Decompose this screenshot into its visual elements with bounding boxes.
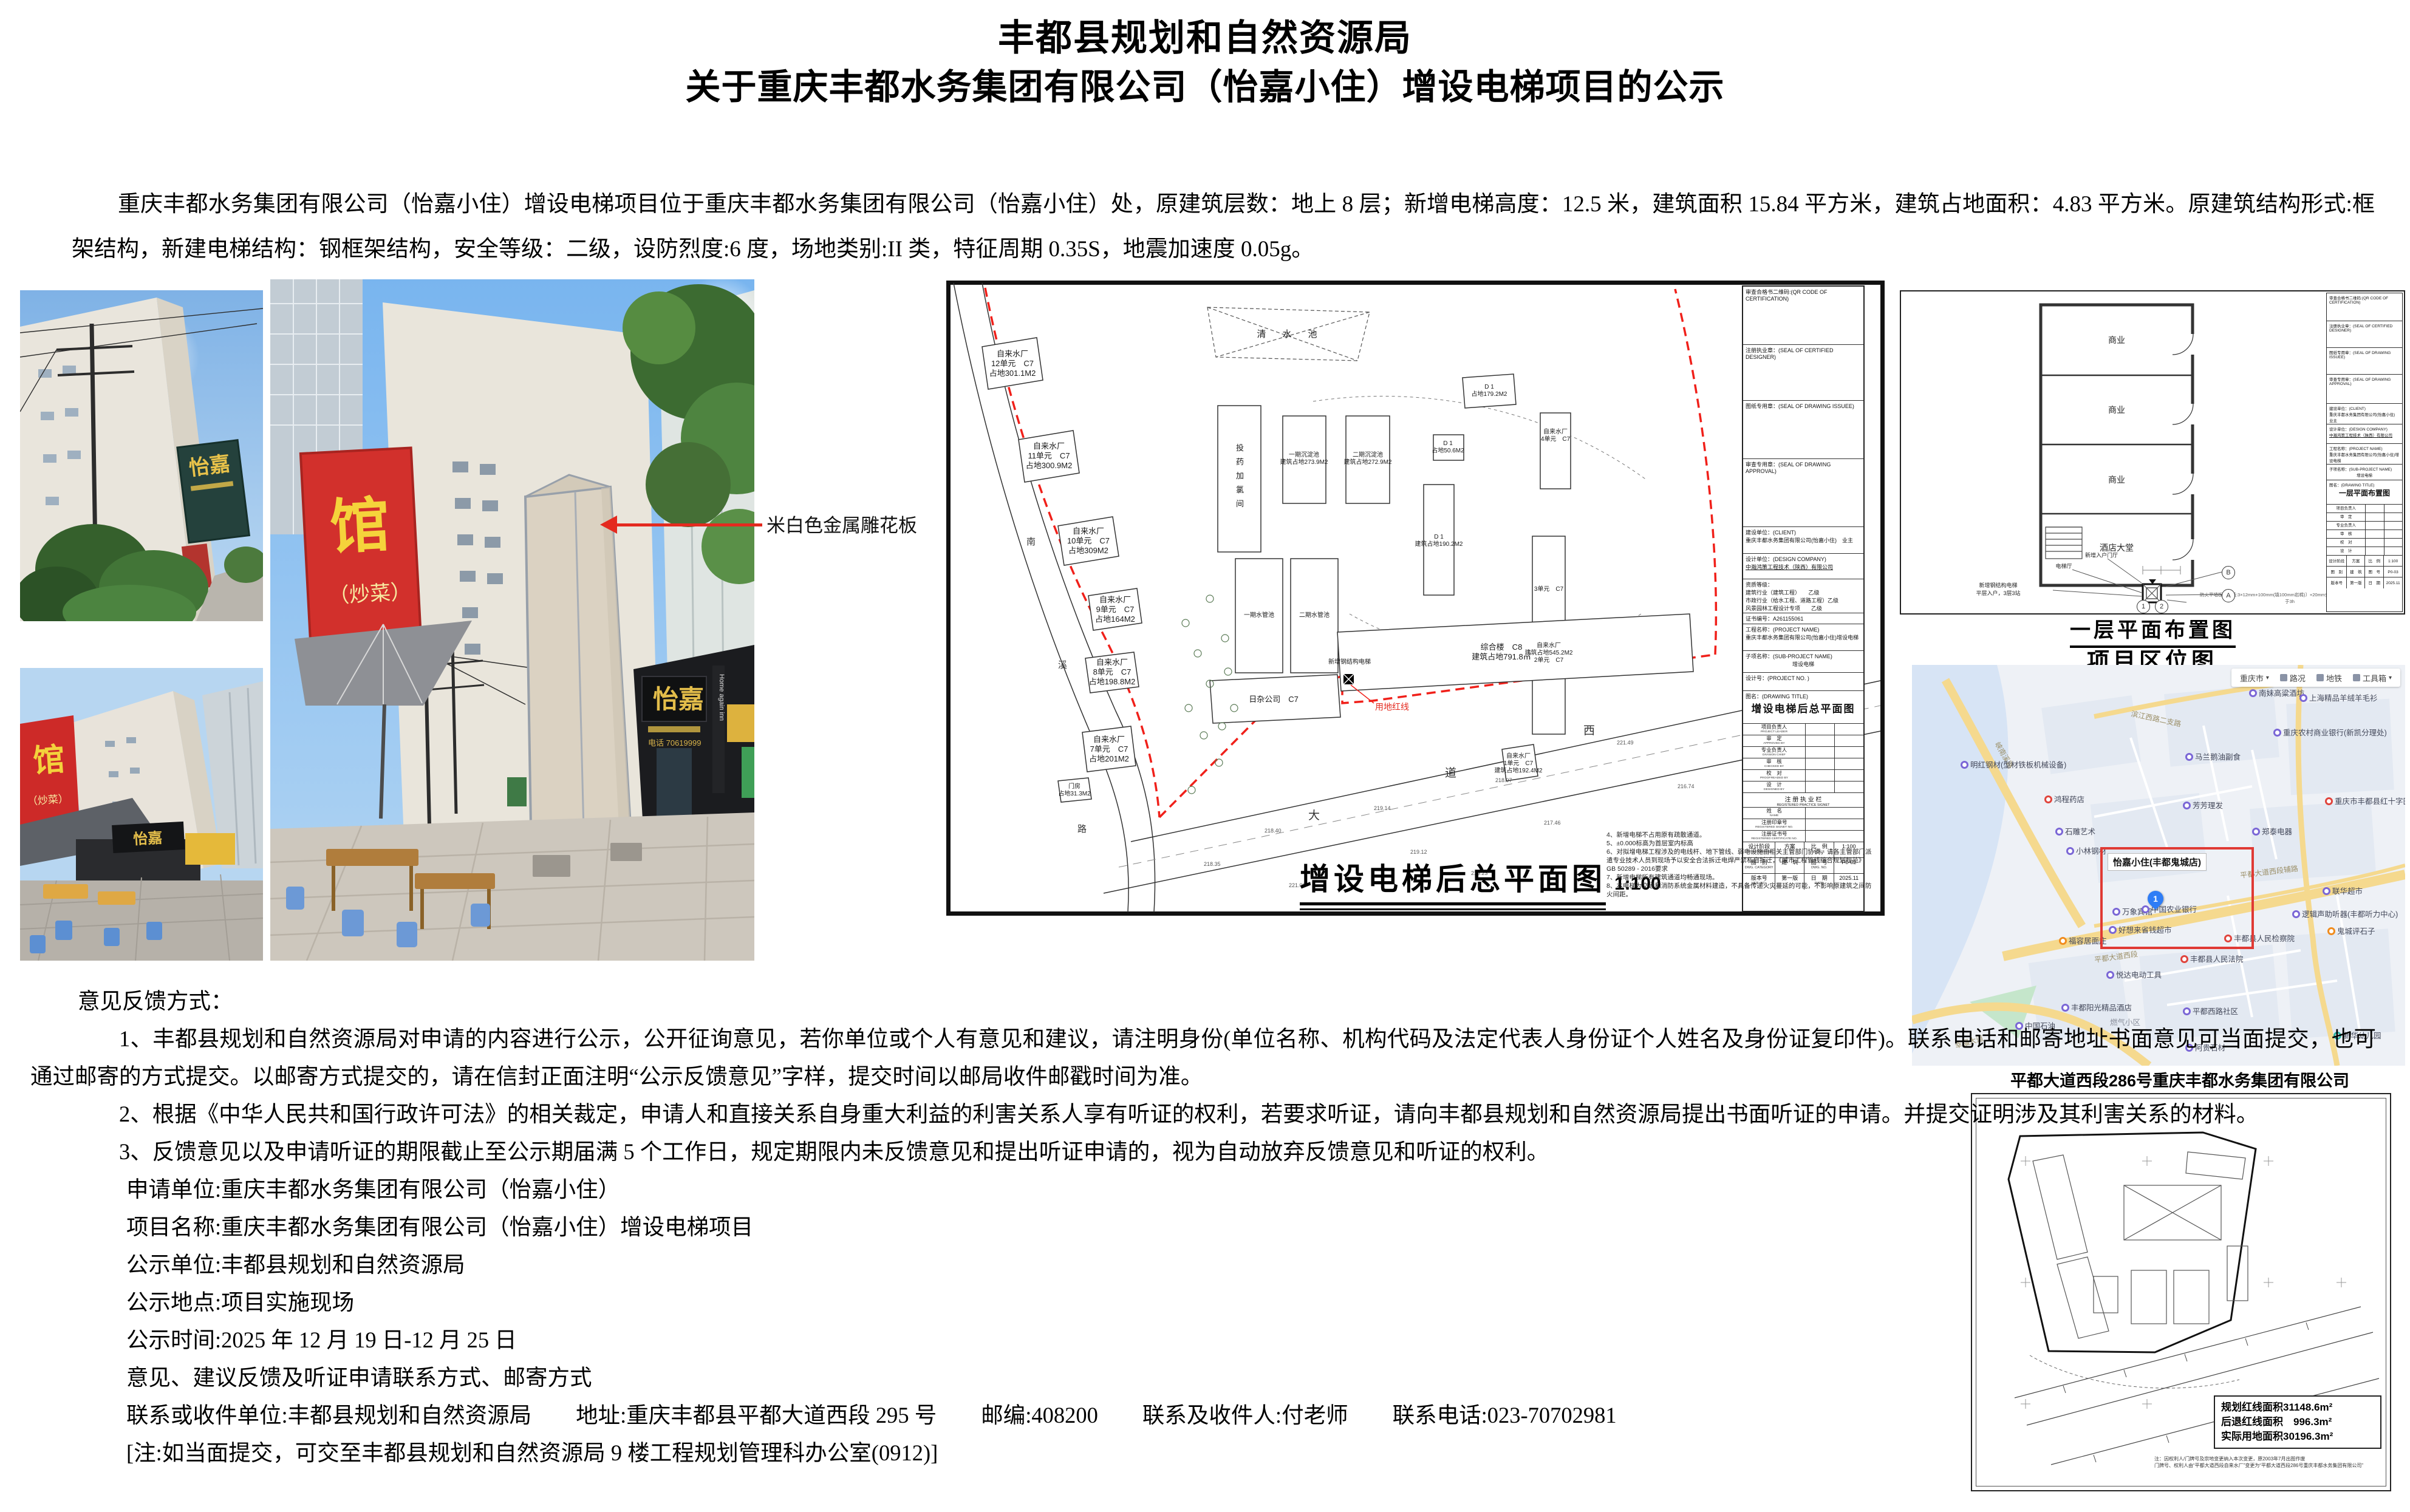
photo2-banner-char: 馆 <box>32 742 66 779</box>
grid-bubble-A: A <box>2222 589 2235 602</box>
metro-icon <box>2316 674 2324 681</box>
note-line: [注:如当面提交，可交至丰都县规划和自然资源局 9 楼工程规划管理科办公室(09… <box>30 1434 2376 1472</box>
notice-unit-line: 公示单位:丰都县规划和自然资源局 <box>30 1246 2376 1284</box>
intro-paragraph: 重庆丰都水务集团有限公司（怡嘉小住）增设电梯项目位于重庆丰都水务集团有限公司（怡… <box>72 182 2375 272</box>
contact-line: 联系或收件单位:丰都县规划和自然资源局 地址:重庆丰都县平都大道西段 295 号… <box>30 1397 2376 1434</box>
photo3-shop-en: Home again inn <box>718 674 725 721</box>
annotation-arrowhead-icon <box>600 516 617 534</box>
map-toolbox-button[interactable]: 工具箱▾ <box>2353 672 2392 684</box>
photo3-banner-dish: （炒菜） <box>328 581 412 608</box>
toolbox-icon <box>2353 674 2360 681</box>
feedback-item-1: 1、丰都县规划和自然资源局对申请的内容进行公示，公开征询意见，若你单位或个人有意… <box>30 1020 2376 1095</box>
master-plan-title-block: 审查合格书二维码:(QR CODE OF CERTIFICATION) 注册执业… <box>1742 285 1865 912</box>
map-marker: 1 <box>2145 888 2167 910</box>
floor-plan-title-block: 审查合格书二维码:(QR CODE OF CERTIFICATION) 注册执业… <box>2326 293 2403 612</box>
map-metro-button[interactable]: 地铁 <box>2316 672 2342 684</box>
photo3-banner-char: 馆 <box>328 491 391 561</box>
photo2-shop-sign: 怡嘉 <box>133 829 163 848</box>
master-plan-notes: 4、新增电梯不占用原有疏散通道。 5、±0.000标高为首层室内标高 6、对拟增… <box>1606 831 1874 899</box>
public-notice-page: 丰都县规划和自然资源局 关于重庆丰都水务集团有限公司（怡嘉小住）增设电梯项目的公… <box>0 0 2410 1512</box>
master-plan-drawing: 218.40 219.14 218.97 221.49 218.35 219.1… <box>946 281 1885 916</box>
grid-bubble-2: 2 <box>2155 600 2168 613</box>
red-line-label: 用地红线 <box>1375 701 1409 713</box>
page-subtitle: 关于重庆丰都水务集团有限公司（怡嘉小住）增设电梯项目的公示 <box>0 58 2410 109</box>
restaurant-banner-large: 馆 （炒菜） <box>301 448 422 655</box>
notice-time-line: 公示时间:2025 年 12 月 19 日-12 月 25 日 <box>30 1321 2376 1359</box>
grid-bubble-B: B <box>2222 566 2235 579</box>
photo3-graphic: 怡嘉 电话 70619999 Home again inn 馆 （炒菜） <box>270 279 754 961</box>
svg-text:216.74: 216.74 <box>1678 783 1695 789</box>
elevator-position-label: 新增钢结构电梯 <box>1328 659 1371 666</box>
feedback-item-3: 3、反馈意见以及申请听证的期限截止至公示期届满 5 个工作日，规定期限内未反馈意… <box>30 1133 2376 1171</box>
site-photo-corner: 怡嘉 <box>20 290 263 621</box>
floor-plan-drawing: 商业 商业 商业 酒店大堂 新增入户门厅 电梯厅 新增钢结构电梯平层入户，3层3… <box>1900 290 2405 615</box>
svg-text:217.46: 217.46 <box>1544 820 1561 826</box>
svg-text:218.35: 218.35 <box>1204 861 1221 867</box>
notice-place-line: 公示地点:项目实施现场 <box>30 1284 2376 1321</box>
annotation-arrow-line <box>615 523 762 526</box>
photo1-graphic: 怡嘉 <box>20 290 263 621</box>
feedback-section: 意见反馈方式： 1、丰都县规划和自然资源局对申请的内容进行公示，公开征询意见，若… <box>30 982 2376 1472</box>
feedback-item-2: 2、根据《中华人民共和国行政许可法》的相关裁定，申请人和直接关系自身重大利益的利… <box>30 1095 2376 1133</box>
map-highlight-label: 怡嘉小住(丰都鬼城店) <box>2108 853 2207 871</box>
annotation-label: 米白色金属雕花板 <box>766 510 917 537</box>
map-controls: 重庆市▾ 路况 地铁 工具箱▾ <box>2231 669 2400 687</box>
photo3-shop-sign: 怡嘉 <box>653 685 704 713</box>
site-photo-elevator: 怡嘉 电话 70619999 Home again inn 馆 （炒菜） <box>270 279 754 961</box>
photo3-shop-phone: 电话 70619999 <box>648 738 701 747</box>
map-traffic-button[interactable]: 路况 <box>2280 672 2306 684</box>
svg-text:218.40: 218.40 <box>1265 828 1282 834</box>
feedback-heading: 意见反馈方式： <box>30 982 2376 1020</box>
grid-bubble-1: 1 <box>2137 600 2150 613</box>
svg-text:221.49: 221.49 <box>1617 740 1634 746</box>
storefront: 怡嘉 电话 70619999 Home again inn <box>633 645 754 829</box>
svg-text:219.14: 219.14 <box>1374 805 1391 811</box>
contact-heading: 意见、建议反馈及听证申请联系方式、邮寄方式 <box>30 1359 2376 1397</box>
svg-text:218.97: 218.97 <box>1495 777 1512 783</box>
project-name-line: 项目名称:重庆丰都水务集团有限公司（怡嘉小住）增设电梯项目 <box>30 1208 2376 1246</box>
page-title: 丰都县规划和自然资源局 <box>0 9 2410 61</box>
traffic-icon <box>2280 674 2287 681</box>
applicant-line: 申请单位:重庆丰都水务集团有限公司（怡嘉小住） <box>30 1171 2376 1208</box>
photo2-graphic: 馆 （炒菜） 怡嘉 <box>20 668 263 961</box>
svg-text:219.12: 219.12 <box>1410 849 1427 855</box>
map-city-select[interactable]: 重庆市▾ <box>2240 672 2269 684</box>
site-photo-street: 馆 （炒菜） 怡嘉 <box>20 668 263 961</box>
